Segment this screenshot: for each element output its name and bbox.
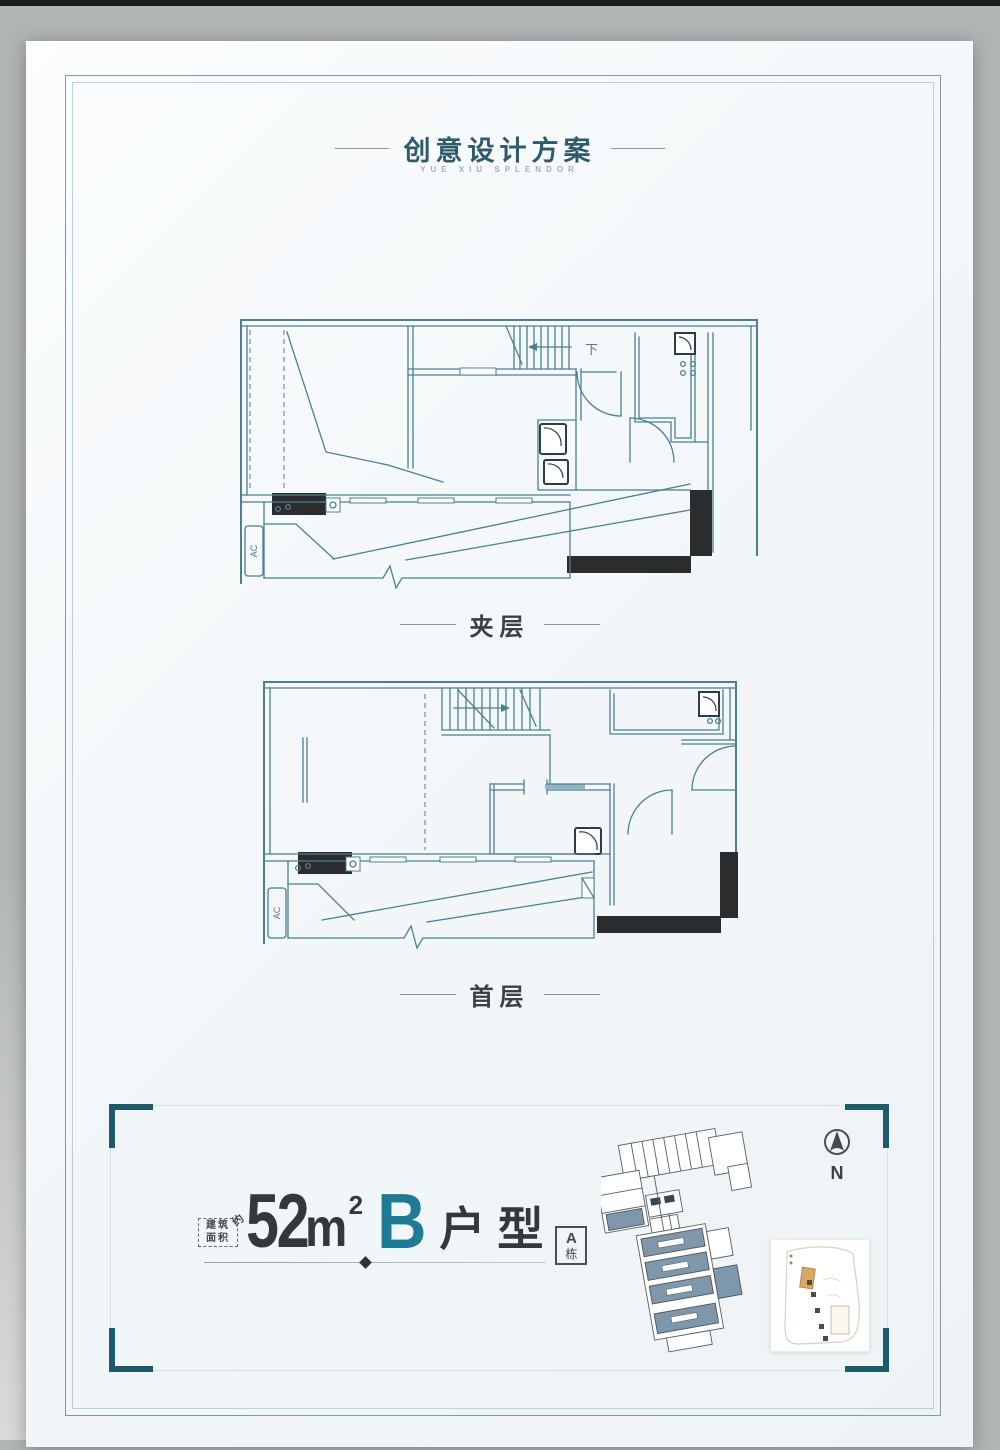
title-divider	[204, 1262, 546, 1263]
area-note-line2: 面积	[206, 1233, 230, 1244]
label-line-right	[544, 994, 600, 995]
building-suffix: 栋	[559, 1247, 583, 1261]
area-value: 52	[246, 1194, 307, 1249]
page-canvas: { "page": { "title": "创意设计方案", "subtitle…	[0, 0, 1000, 1450]
first-floor-label: 首层	[470, 977, 530, 1012]
building-badge: A 栋	[555, 1226, 587, 1265]
corner-bracket-top-left	[109, 1104, 153, 1148]
area-unit: m	[305, 1207, 347, 1249]
ac-label-first-floor: AC	[272, 906, 282, 919]
mezzanine-label: 夹层	[470, 607, 530, 642]
building-letter: A	[559, 1231, 583, 1247]
label-line-right	[544, 624, 600, 625]
title-line-right	[611, 148, 665, 149]
page-title: 创意设计方案	[404, 129, 596, 168]
unit-type-suffix: 户型	[439, 1209, 555, 1249]
unit-type-letter: B	[377, 1193, 427, 1249]
page-subtitle: YUE XIU SPLENDOR	[26, 165, 973, 174]
corner-bracket-bottom-left	[109, 1328, 153, 1372]
ac-label-mezzanine: AC	[249, 544, 259, 557]
mezzanine-floorplan: 下 AC	[238, 312, 763, 597]
top-strip	[0, 0, 1000, 6]
building-keyplan	[601, 1116, 761, 1356]
compass-icon	[819, 1127, 855, 1157]
page-sheet: 创意设计方案 YUE XIU SPLENDOR 下	[26, 41, 973, 1447]
compass-label: N	[817, 1163, 857, 1184]
header-title-row: 创意设计方案	[26, 129, 973, 168]
site-map	[771, 1240, 869, 1351]
area-note-box: 建筑 面积 约	[198, 1218, 238, 1247]
area-exponent: 2	[349, 1190, 363, 1221]
first-floor-floorplan: AC	[262, 672, 740, 964]
unit-title-row: 建筑 面积 约 52 m 2 B 户型 A 栋	[198, 1191, 587, 1249]
plan-label-first-floor: 首层	[26, 977, 973, 1012]
site-map-card	[770, 1239, 870, 1352]
plan-label-mezzanine: 夹层	[26, 607, 973, 642]
compass: N	[817, 1127, 857, 1184]
area-note-line1: 建筑	[206, 1220, 230, 1231]
label-line-left	[400, 994, 456, 995]
label-line-left	[400, 624, 456, 625]
stair-down-label: 下	[585, 342, 598, 357]
title-line-left	[335, 148, 389, 149]
